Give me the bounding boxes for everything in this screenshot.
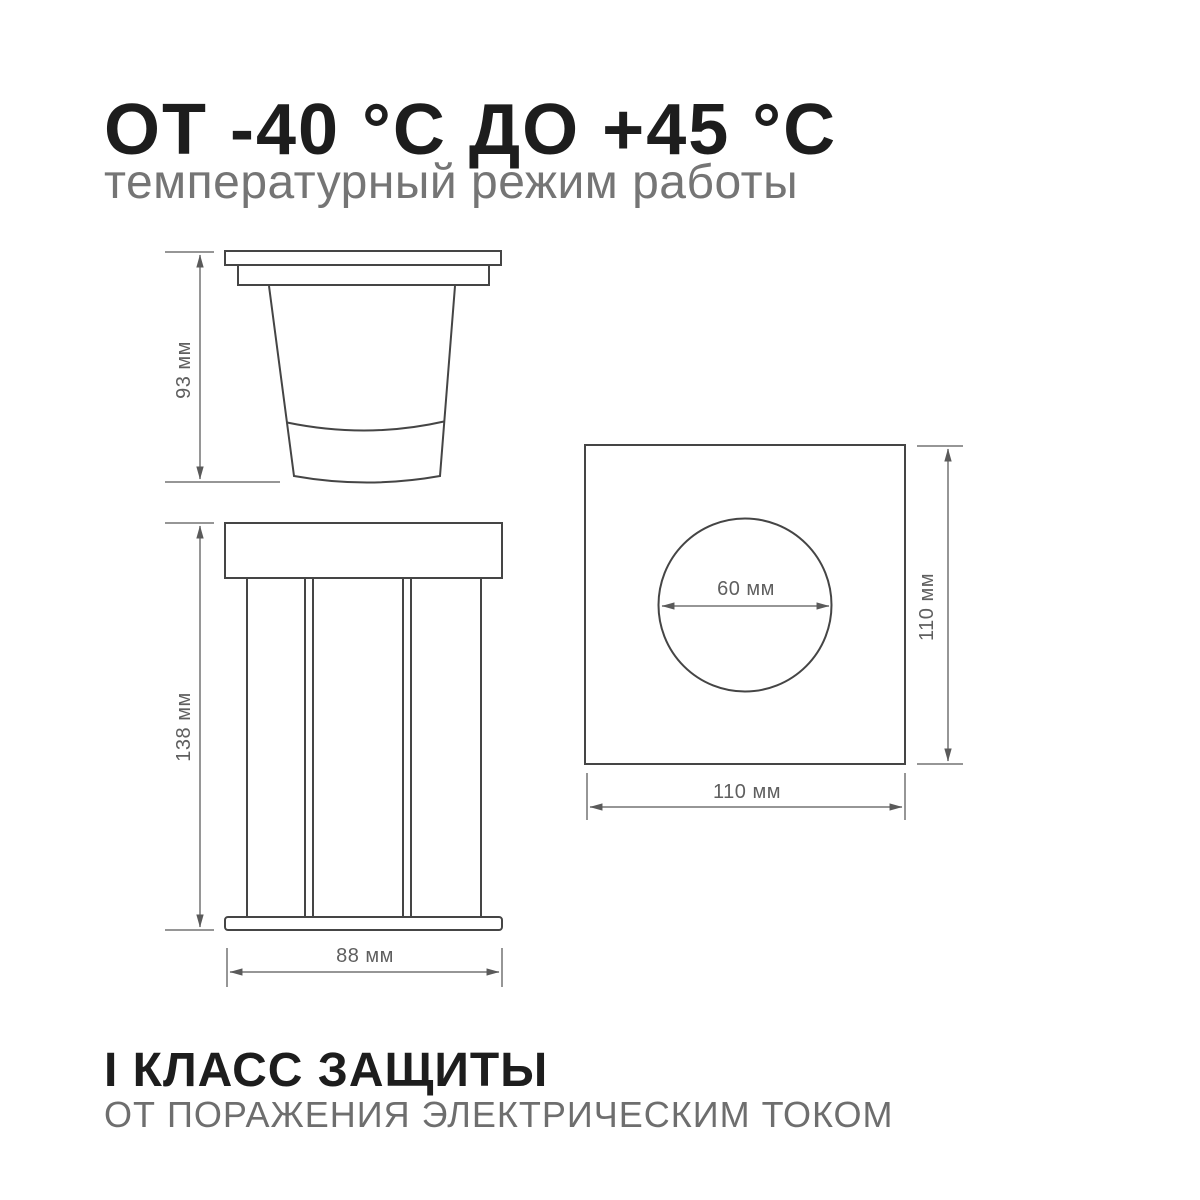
- protection-class-subtitle: ОТ ПОРАЖЕНИЯ ЭЛЕКТРИЧЕСКИМ ТОКОМ: [104, 1097, 894, 1133]
- protection-class-title: I КЛАСС ЗАЩИТЫ: [104, 1047, 548, 1095]
- side-view-body: [269, 286, 455, 483]
- faceplate-height-label: 110 мм: [917, 573, 937, 641]
- page-subtitle: температурный режим работы: [104, 159, 798, 207]
- front-view-width-label: 88 мм: [336, 946, 394, 966]
- front-view-head: [225, 523, 502, 578]
- top-view-faceplate: [585, 445, 905, 764]
- front-view-height-label: 138 мм: [174, 692, 194, 761]
- side-view-drawing: [225, 251, 501, 483]
- side-view-flange: [225, 251, 501, 265]
- front-view-base-plate: [225, 917, 502, 930]
- side-view-collar: [238, 265, 489, 285]
- side-view-height-label: 93 мм: [174, 341, 194, 399]
- faceplate-width-label: 110 мм: [713, 782, 781, 802]
- top-view-drawing: [585, 445, 905, 764]
- front-view-drawing: [225, 523, 502, 930]
- cutout-diameter-label: 60 мм: [717, 579, 775, 599]
- top-view-cutout-circle: [659, 519, 832, 692]
- side-view-body-seam: [287, 422, 444, 431]
